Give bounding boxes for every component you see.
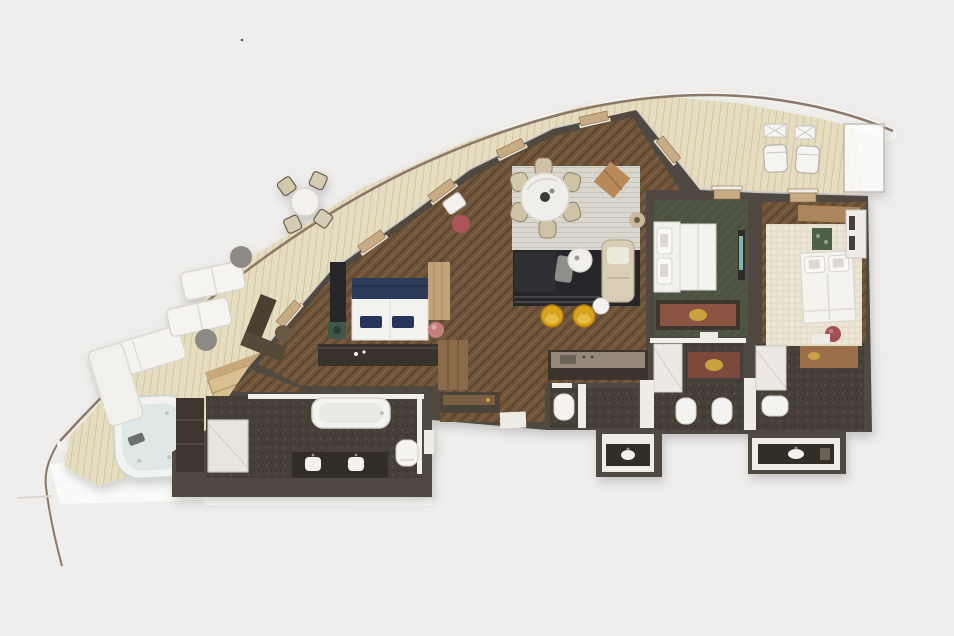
bath-wall-face	[552, 383, 572, 388]
table-lamp	[428, 322, 444, 338]
pillow-inset	[832, 258, 843, 268]
side-table	[195, 329, 217, 351]
speck	[241, 39, 244, 42]
toilet	[762, 396, 788, 416]
gold-luggage	[705, 359, 723, 371]
toilet	[712, 398, 732, 424]
bath-wall-face	[650, 338, 746, 343]
galley	[548, 350, 648, 380]
toilet	[396, 440, 418, 466]
outdoor-round-table	[291, 188, 319, 216]
glass-divider	[844, 124, 884, 192]
master-bed-throw	[352, 278, 428, 299]
drain	[380, 411, 384, 415]
faucet	[627, 448, 630, 451]
chaise-cushion	[607, 247, 629, 264]
door-sill	[712, 186, 742, 190]
dining-chair	[539, 220, 556, 238]
door-sill	[788, 189, 818, 193]
toilet	[554, 394, 574, 420]
hall-wall-white	[578, 384, 586, 428]
wardrobe-slat	[849, 236, 855, 250]
bath-door-gap	[424, 430, 434, 454]
sofa	[514, 252, 556, 292]
shower	[756, 346, 786, 390]
entry-door-gap	[500, 412, 527, 429]
planter	[812, 228, 832, 250]
sink	[560, 355, 576, 364]
wall-tv	[739, 236, 743, 270]
gold-decor	[808, 352, 820, 360]
coffee-table-decor	[575, 256, 580, 261]
pillow-inset	[809, 259, 820, 269]
bed-pillow	[360, 316, 382, 328]
centerpiece	[540, 192, 550, 202]
terrace-door	[714, 190, 740, 199]
coffee-table	[568, 248, 592, 272]
console-dresser	[318, 344, 442, 366]
faucet	[355, 454, 358, 457]
dining-area	[509, 158, 645, 250]
nightstand-tray	[333, 326, 341, 334]
gold-decor	[689, 309, 707, 321]
pouf	[452, 215, 470, 233]
vanity-accessory	[820, 448, 830, 460]
closet-shelving	[438, 340, 468, 390]
lamp	[634, 217, 640, 223]
vanity-sink	[348, 457, 364, 471]
hall-wall-white	[640, 380, 654, 428]
bottle	[486, 398, 490, 402]
wood-panel	[428, 262, 450, 320]
pillow-inset	[660, 264, 668, 277]
floorplan-svg	[0, 0, 954, 636]
figurine	[354, 352, 358, 356]
bath-wall-face	[417, 396, 422, 474]
vanity-sink	[305, 457, 321, 471]
burner	[591, 356, 594, 359]
side-table	[230, 246, 252, 268]
wardrobe-slat	[849, 216, 855, 230]
bed-pillow	[392, 316, 414, 328]
tub-chair-seat	[578, 314, 591, 324]
vanity-sink	[788, 449, 804, 459]
bed3-group	[800, 251, 856, 324]
lounge-chair	[795, 145, 820, 174]
terrace-door	[790, 193, 816, 202]
floorplan	[0, 0, 954, 636]
side-table	[593, 298, 609, 314]
figurine	[362, 350, 365, 353]
plant	[816, 234, 820, 238]
hall-wall-white	[744, 378, 756, 430]
bedside-rug	[330, 262, 346, 324]
bath2-door-gap	[700, 332, 718, 342]
toilet	[676, 398, 696, 424]
bathtub-basin	[319, 403, 383, 423]
plant	[824, 240, 828, 244]
pillow-inset	[660, 234, 668, 247]
table-decor	[550, 189, 555, 194]
lamp-highlight	[432, 325, 437, 330]
faucet	[583, 356, 586, 359]
bath3-door-gap	[812, 334, 830, 344]
tub-chair-seat	[546, 314, 559, 324]
faucet	[795, 447, 798, 450]
lounge-chair	[763, 144, 788, 173]
ball-lamp-highlight	[829, 329, 834, 334]
vanity-sink	[621, 450, 635, 460]
shower	[654, 344, 682, 392]
faucet	[312, 454, 315, 457]
bath-wardrobe	[176, 398, 204, 472]
